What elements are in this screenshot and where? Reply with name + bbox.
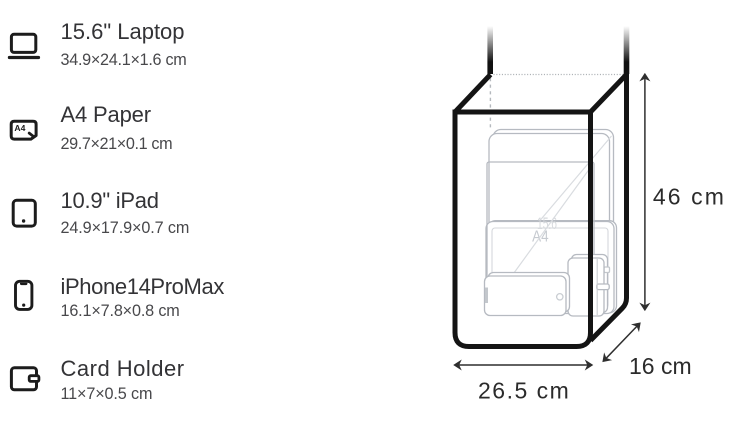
svg-text:26.5 cm: 26.5 cm — [478, 378, 570, 404]
svg-text:16 cm: 16 cm — [629, 353, 692, 379]
svg-text:46 cm: 46 cm — [653, 184, 726, 210]
